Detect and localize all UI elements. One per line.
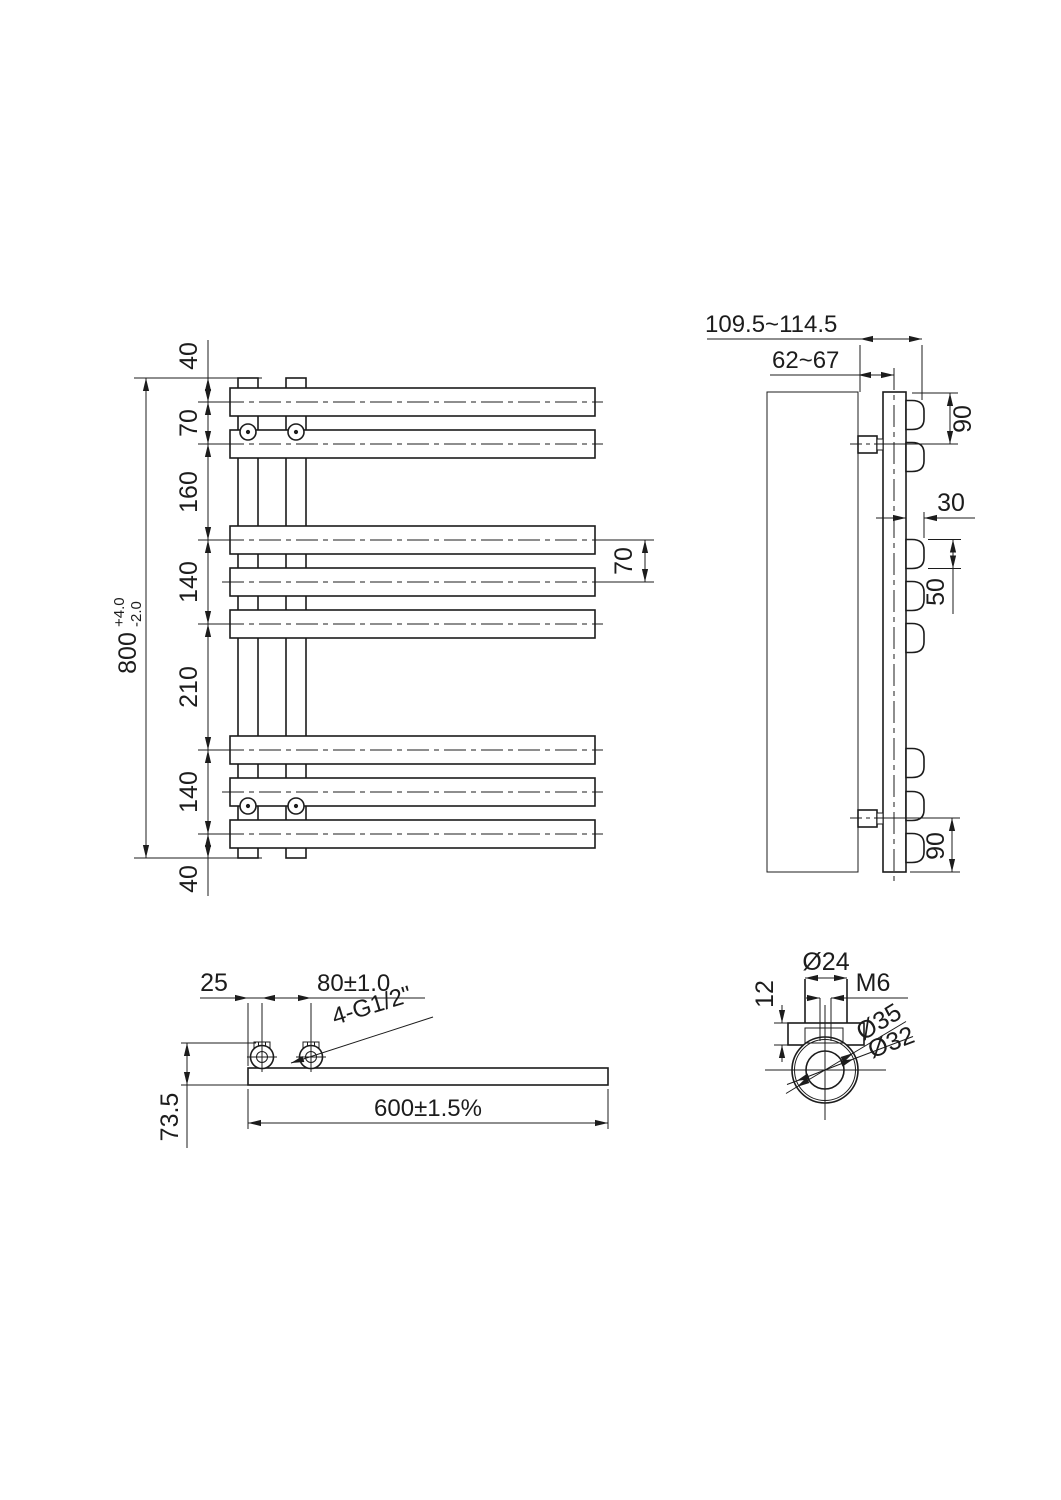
dim-chain-210: 210 <box>175 666 203 708</box>
dim-depth-overall: 73.5 <box>156 1093 184 1142</box>
overall-height-tol-minus: -2.0 <box>128 601 145 627</box>
front-view <box>222 378 603 858</box>
towel-bars <box>230 388 595 848</box>
dim-bar-height: 50 <box>922 578 950 606</box>
dim-bottom-bracket-offset: 90 <box>922 832 950 860</box>
dim-edge-to-valve: 25 <box>200 969 228 997</box>
bottom-dimensions: 25 80±1.0 4-G1/2" 73.5 600±1.5% <box>156 969 608 1148</box>
dim-chain-40-bottom: 40 <box>175 865 203 893</box>
bar-cross-sections <box>906 401 924 863</box>
dim-screw-thread: M6 <box>856 969 891 997</box>
dim-wall-to-axis: 62~67 <box>772 347 839 374</box>
dim-bar-depth: 30 <box>937 489 965 517</box>
dim-chain-140-lower: 140 <box>175 771 203 813</box>
bracket-boss <box>805 979 847 1023</box>
bar-top-profile <box>248 1068 608 1085</box>
overall-height-tol-plus: +4.0 <box>111 597 128 627</box>
valve-connection-left <box>247 1040 277 1072</box>
side-dimensions: 109.5~114.5 62~67 90 30 50 90 <box>705 311 977 872</box>
dim-plate-thickness: 12 <box>751 980 779 1008</box>
dim-depth-range: 109.5~114.5 <box>705 311 837 338</box>
bottom-view <box>247 1040 608 1085</box>
side-view <box>767 368 934 882</box>
dim-chain-160: 160 <box>175 471 203 513</box>
dim-width-overall: 600±1.5% <box>374 1095 482 1122</box>
dim-top-bracket-offset: 90 <box>949 405 977 433</box>
technical-drawing: 40 70 160 140 210 140 40 800 +4.0 -2.0 7… <box>0 0 1061 1500</box>
brick-wall <box>767 392 858 872</box>
drawing-canvas: 40 70 160 140 210 140 40 800 +4.0 -2.0 7… <box>0 0 1061 1500</box>
overall-height-value: 800 <box>114 632 142 674</box>
dim-bar-pitch: 70 <box>610 547 638 575</box>
dim-chain-140-upper: 140 <box>175 561 203 603</box>
dim-chain-70: 70 <box>175 409 203 437</box>
dim-boss-dia: Ø24 <box>802 948 849 976</box>
dim-chain-40-top: 40 <box>175 342 203 370</box>
dim-overall-height: 800 +4.0 -2.0 <box>111 597 145 673</box>
